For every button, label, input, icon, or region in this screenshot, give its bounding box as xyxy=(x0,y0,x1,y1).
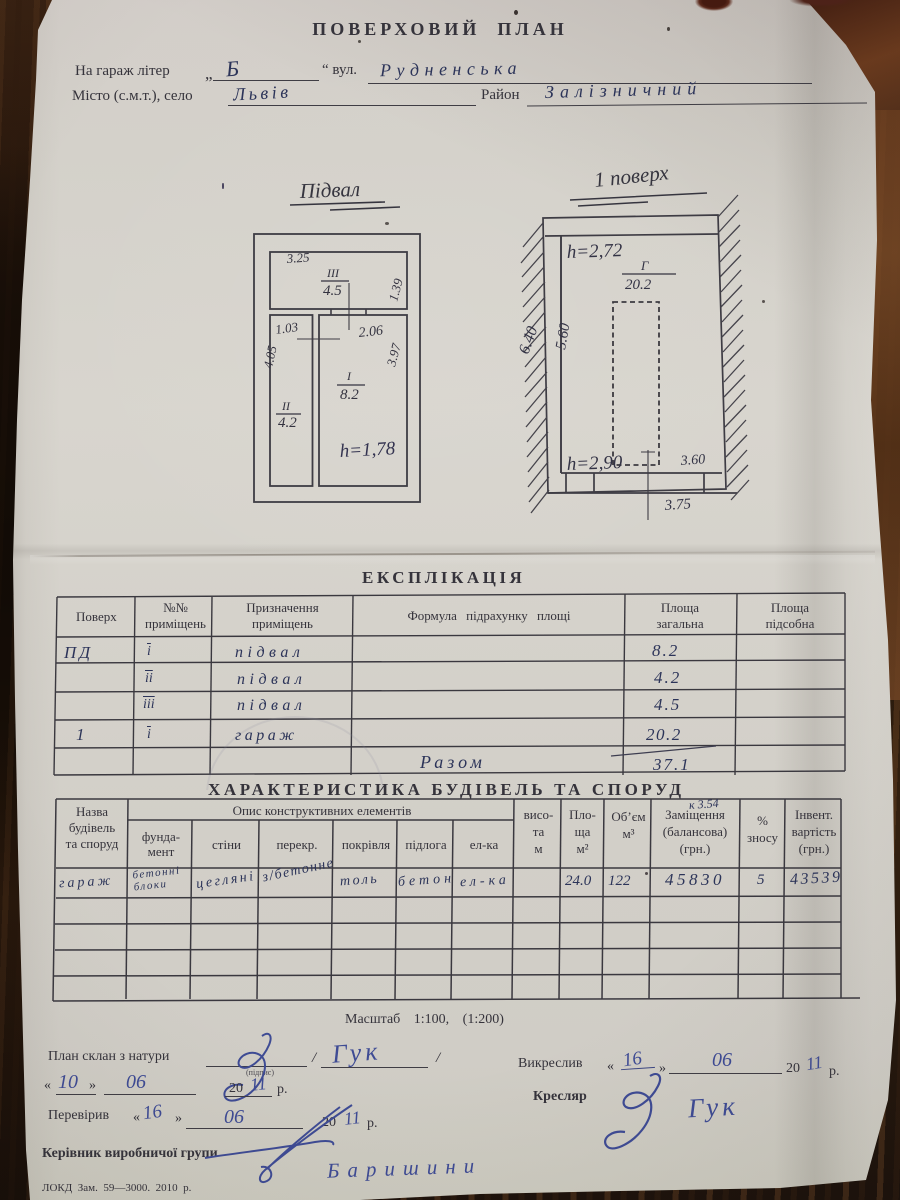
svg-text:2.06: 2.06 xyxy=(358,323,384,340)
svg-text:ІІ: ІІ xyxy=(281,399,291,413)
svg-text:3.97: 3.97 xyxy=(383,341,404,368)
svg-text:1.39: 1.39 xyxy=(385,276,406,302)
svg-text:4.5: 4.5 xyxy=(323,283,342,299)
svg-text:5.60: 5.60 xyxy=(553,322,573,351)
svg-text:4.2: 4.2 xyxy=(278,415,297,431)
svg-text:1 поверх: 1 поверх xyxy=(593,160,670,192)
svg-text:h=2,90: h=2,90 xyxy=(566,452,623,475)
svg-text:3.75: 3.75 xyxy=(663,496,692,514)
svg-text:3.25: 3.25 xyxy=(285,249,310,266)
svg-text:1.03: 1.03 xyxy=(274,319,299,337)
svg-text:3.60: 3.60 xyxy=(679,452,705,469)
svg-text:Г: Г xyxy=(640,258,649,273)
svg-text:20.2: 20.2 xyxy=(625,277,652,293)
svg-text:h=2,72: h=2,72 xyxy=(566,240,623,263)
svg-text:І: І xyxy=(346,369,352,383)
svg-text:4.05: 4.05 xyxy=(260,344,280,370)
svg-text:ІІІ: ІІІ xyxy=(326,266,340,280)
svg-text:h=1,78: h=1,78 xyxy=(339,438,396,462)
svg-text:Підвал: Підвал xyxy=(298,177,360,203)
svg-text:8.2: 8.2 xyxy=(340,387,359,403)
